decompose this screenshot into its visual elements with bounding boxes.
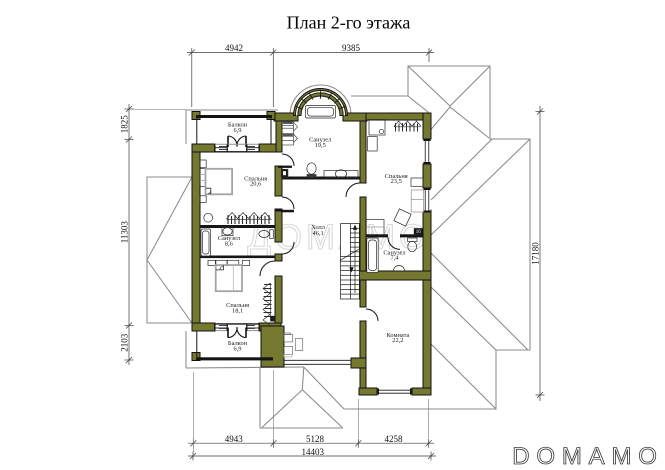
svg-text:4943: 4943 <box>225 434 244 444</box>
svg-text:17180: 17180 <box>531 242 541 265</box>
svg-text:6,9: 6,9 <box>234 346 242 353</box>
svg-text:14403: 14403 <box>302 447 325 457</box>
svg-text:8,6: 8,6 <box>225 240 233 247</box>
svg-text:4258: 4258 <box>385 434 404 444</box>
svg-text:5128: 5128 <box>306 434 325 444</box>
svg-text:19,5: 19,5 <box>315 142 326 149</box>
svg-text:DOMAMO: DOMAMO <box>512 443 663 470</box>
svg-text:7,4: 7,4 <box>391 255 400 262</box>
svg-text:6,9: 6,9 <box>234 127 242 134</box>
svg-text:46,1: 46,1 <box>313 230 324 237</box>
svg-text:11303: 11303 <box>120 221 130 244</box>
svg-text:План 2-го этажа: План 2-го этажа <box>287 13 411 33</box>
svg-text:20,6: 20,6 <box>250 180 261 187</box>
svg-text:4942: 4942 <box>225 43 243 53</box>
svg-text:9385: 9385 <box>342 43 361 53</box>
svg-text:2103: 2103 <box>120 333 130 352</box>
svg-text:16: 16 <box>416 230 422 235</box>
svg-text:1825: 1825 <box>120 115 130 134</box>
svg-text:18,1: 18,1 <box>232 307 243 314</box>
svg-text:22,2: 22,2 <box>392 337 403 344</box>
svg-text:23,5: 23,5 <box>391 178 402 185</box>
